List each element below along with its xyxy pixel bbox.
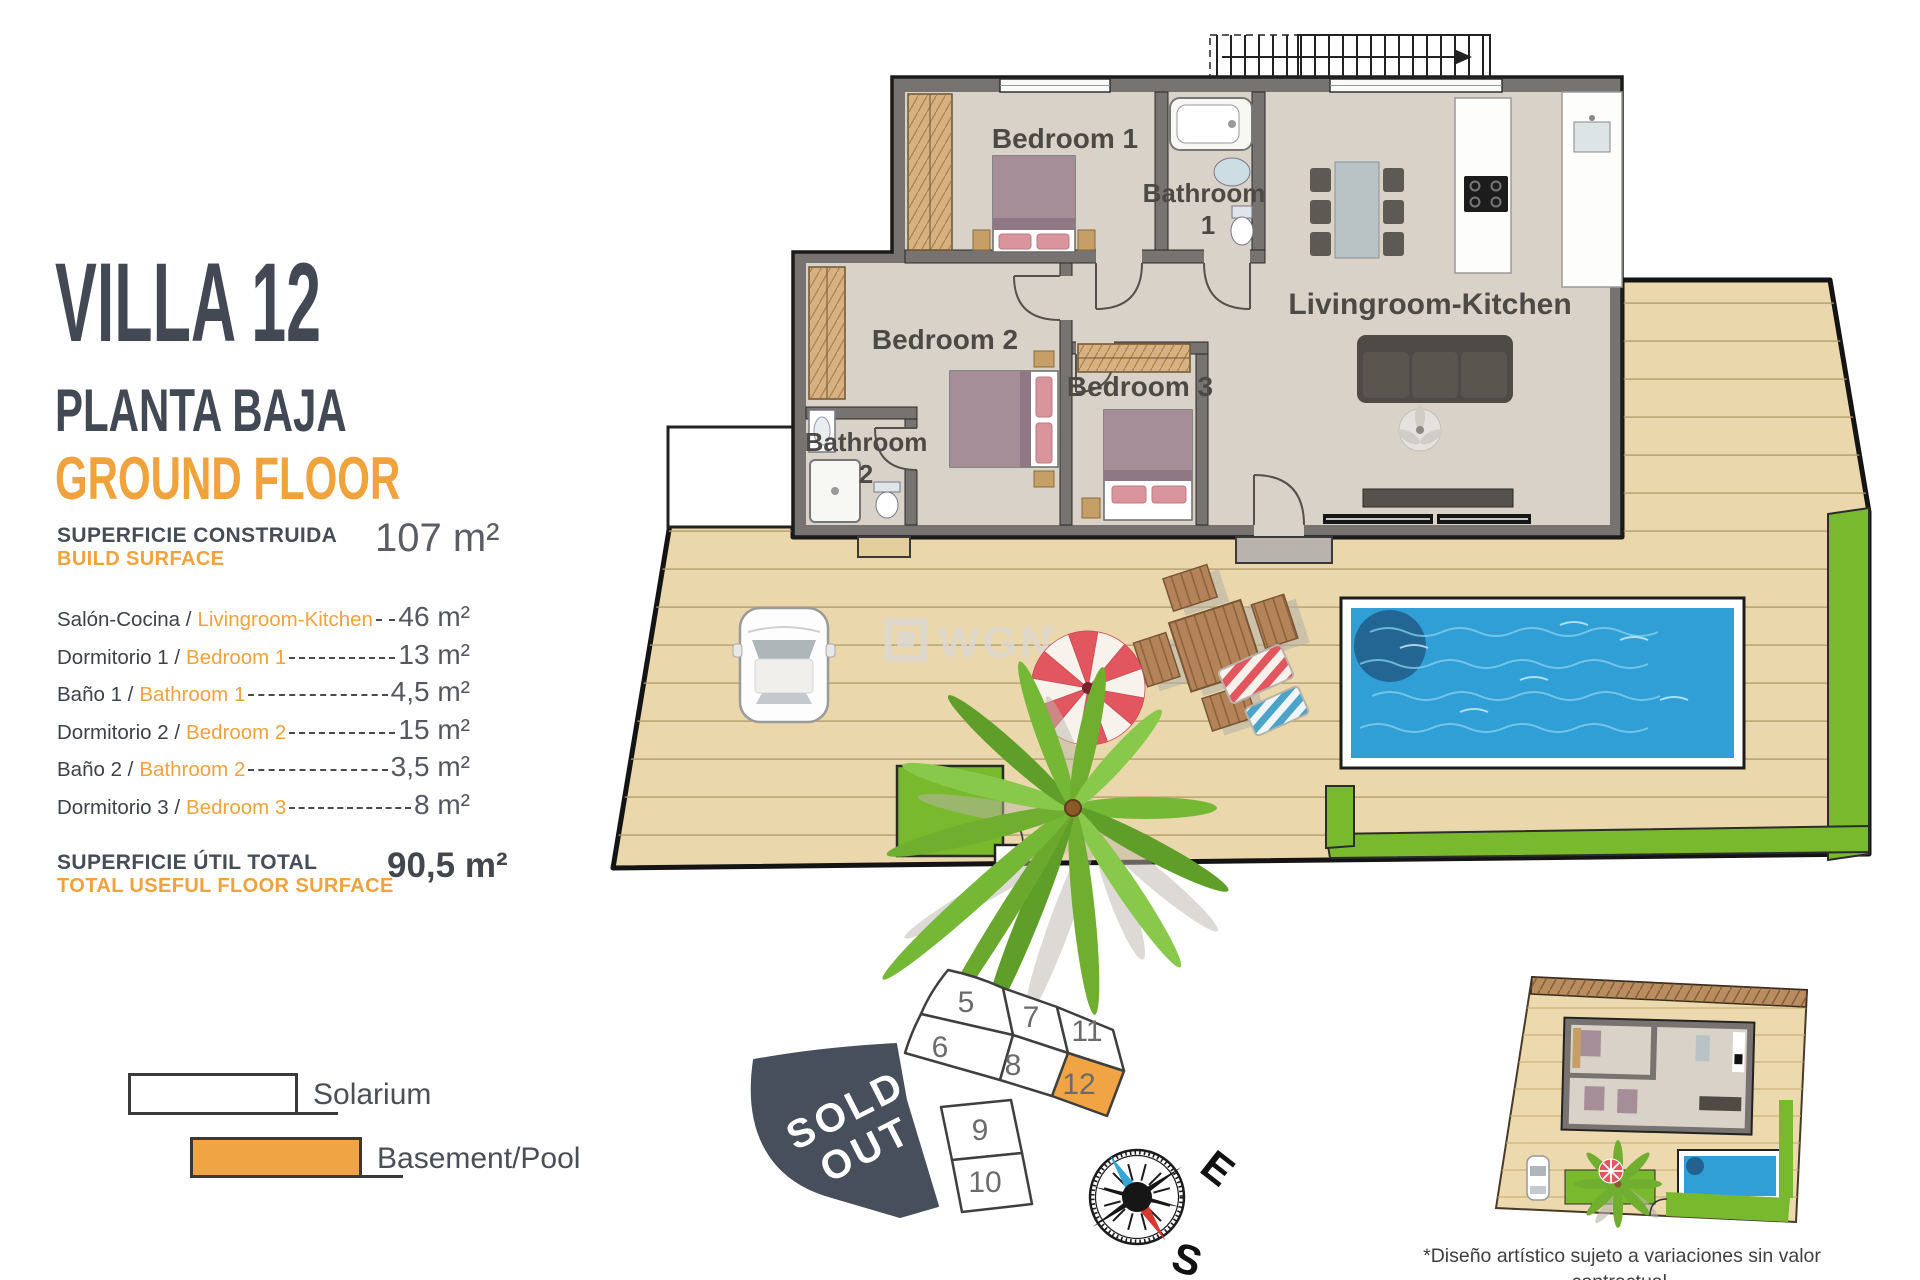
bathroom2-number: 2 (859, 459, 873, 489)
legend-solarium-swatch (128, 1073, 298, 1115)
room-label-es: Baño 2 / (57, 758, 133, 782)
floor-label-en: GROUND FLOOR (55, 449, 400, 509)
surface-table: Salón-Cocina / Livingroom-Kitchen 46 m² … (57, 601, 470, 826)
mini-palm (1574, 1140, 1662, 1228)
livingroom-label: Livingroom-Kitchen (1288, 288, 1571, 321)
toilet (874, 482, 900, 492)
room-value: 8 m² (414, 789, 470, 821)
grass-notch (1326, 786, 1354, 848)
wgn-watermark: WGN ® (888, 618, 1057, 667)
room-label-es: Dormitorio 1 / (57, 646, 180, 670)
total-surface-value: 90,5 m² (387, 846, 508, 886)
legend-solarium-label: Solarium (313, 1078, 431, 1112)
bathroom1-number: 1 (1201, 210, 1215, 240)
room-value: 3,5 m² (391, 751, 470, 783)
watermark-mark: ® (1046, 620, 1057, 636)
plot-map: 5 7 11 6 8 12 9 10 SOLD OUT (752, 970, 1124, 1217)
room-label-es: Dormitorio 3 / (57, 796, 180, 820)
bedroom3-label: Bedroom 3 (1067, 371, 1213, 402)
table-row: Baño 1 / Bathroom 1 4,5 m² (57, 676, 470, 714)
bedroom1-label: Bedroom 1 (992, 123, 1138, 154)
pool (1341, 598, 1744, 768)
bedroom2-label: Bedroom 2 (872, 324, 1018, 355)
room-label-en: Livingroom-Kitchen (197, 608, 372, 632)
mini-grass-strip (1779, 1100, 1793, 1198)
dotted-leader (248, 769, 387, 771)
porch-step-main (1236, 537, 1332, 563)
build-surface-label-es: SUPERFICIE CONSTRUIDA (57, 524, 337, 548)
legend-basement-label: Basement/Pool (377, 1142, 580, 1176)
page-title: VILLA 12 (55, 247, 321, 359)
svg-text:5: 5 (958, 986, 975, 1019)
room-label-en: Bathroom 1 (139, 683, 245, 707)
table-row: Dormitorio 2 / Bedroom 2 15 m² (57, 714, 470, 752)
watermark-text: WGN (938, 618, 1055, 667)
room-value: 15 m² (398, 714, 470, 746)
room-label-en: Bedroom 3 (186, 796, 286, 820)
bathroom1-label: Bathroom (1143, 178, 1266, 208)
room-label-en: Bedroom 1 (186, 646, 286, 670)
dotted-leader (289, 657, 395, 659)
dotted-leader (289, 807, 411, 809)
room-label-en: Bedroom 2 (186, 721, 286, 745)
kitchen-sink (1574, 122, 1610, 152)
exterior-stairs (1210, 35, 1490, 78)
porch-step-left (858, 537, 910, 557)
svg-text:9: 9 (972, 1114, 989, 1147)
disclaimer-line-1: *Diseño artístico sujeto a variaciones s… (1382, 1243, 1862, 1280)
bathroom2-label: Bathroom (805, 427, 928, 457)
room-value: 13 m² (398, 639, 470, 671)
svg-text:7: 7 (1023, 1001, 1040, 1034)
kitchen-counter (1562, 92, 1622, 287)
legend-line (128, 1112, 338, 1115)
mini-car (1527, 1156, 1549, 1200)
house: Bedroom 1 Bathroom 1 Livingroom-Kitchen … (793, 35, 1622, 563)
room-label-es: Dormitorio 2 / (57, 721, 180, 745)
room-value: 4,5 m² (391, 676, 470, 708)
car-top-view (733, 608, 835, 722)
total-surface-block: SUPERFICIE ÚTIL TOTAL TOTAL USEFUL FLOOR… (57, 851, 394, 898)
mini-overview-plan (1496, 977, 1807, 1228)
legend-line (190, 1175, 403, 1178)
compass-east-label: E (1192, 1141, 1243, 1195)
table-row: Baño 2 / Bathroom 2 3,5 m² (57, 751, 470, 789)
total-label-en: TOTAL USEFUL FLOOR SURFACE (57, 875, 394, 898)
dotted-leader (376, 619, 395, 621)
build-surface-label-en: BUILD SURFACE (57, 548, 337, 571)
svg-text:8: 8 (1005, 1049, 1022, 1082)
svg-text:11: 11 (1071, 1015, 1102, 1048)
dining-table (1335, 162, 1379, 258)
disclaimer: *Diseño artístico sujeto a variaciones s… (1382, 1243, 1862, 1280)
build-surface-value: 107 m² (375, 516, 500, 561)
svg-text:10: 10 (968, 1166, 1001, 1199)
svg-text:6: 6 (932, 1031, 949, 1064)
table-row: Salón-Cocina / Livingroom-Kitchen 46 m² (57, 601, 470, 639)
compass-rose: E S (1090, 1141, 1243, 1280)
table-row: Dormitorio 3 / Bedroom 3 8 m² (57, 789, 470, 827)
compass-south-label: S (1167, 1233, 1208, 1280)
mini-parasol (1599, 1159, 1623, 1183)
tv-bench (1363, 489, 1513, 507)
dotted-leader (289, 732, 395, 734)
room-label-en: Bathroom 2 (139, 758, 245, 782)
dotted-leader (248, 694, 387, 696)
room-value: 46 m² (398, 601, 470, 633)
sofa (1357, 335, 1513, 403)
cooktop (1464, 176, 1508, 212)
room-label-es: Baño 1 / (57, 683, 133, 707)
mini-house (1562, 1018, 1755, 1135)
grass-right-strip (1828, 508, 1869, 860)
floor-label-es: PLANTA BAJA (55, 381, 347, 441)
table-row: Dormitorio 1 / Bedroom 1 13 m² (57, 639, 470, 677)
room-label-es: Salón-Cocina / (57, 608, 191, 632)
legend-basement-swatch (190, 1137, 362, 1178)
build-surface-block: SUPERFICIE CONSTRUIDA BUILD SURFACE (57, 524, 337, 571)
total-label-es: SUPERFICIE ÚTIL TOTAL (57, 851, 394, 875)
svg-text:12: 12 (1062, 1068, 1095, 1101)
brochure-page: WGN ® (0, 0, 1920, 1280)
solarium-area (668, 427, 793, 527)
